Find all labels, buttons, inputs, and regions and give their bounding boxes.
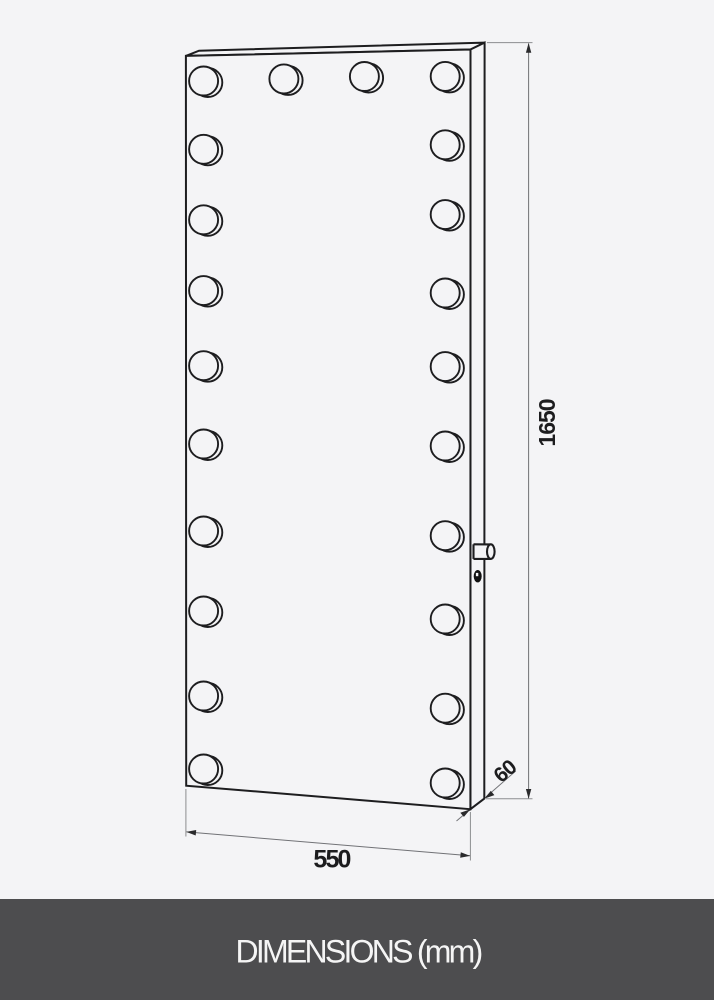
svg-text:550: 550 (313, 845, 350, 873)
svg-text:DIMENSIONS (mm): DIMENSIONS (mm) (236, 934, 482, 970)
svg-text:1650: 1650 (534, 399, 560, 446)
